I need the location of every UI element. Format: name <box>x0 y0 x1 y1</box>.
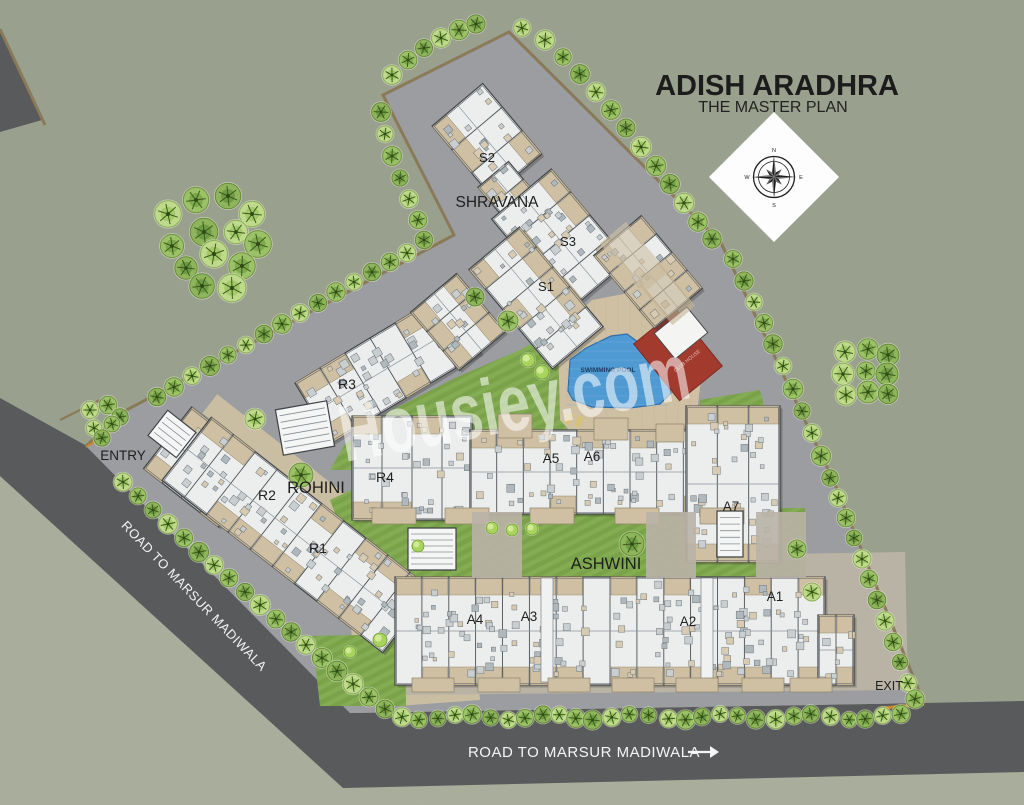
svg-text:ROAD TO MARSUR MADIWALA: ROAD TO MARSUR MADIWALA <box>468 744 700 761</box>
svg-text:A5: A5 <box>543 451 560 466</box>
svg-text:A4: A4 <box>467 612 484 627</box>
svg-text:EXIT: EXIT <box>875 679 903 693</box>
svg-text:A6: A6 <box>584 449 601 464</box>
svg-text:A3: A3 <box>521 609 538 624</box>
svg-text:S: S <box>772 203 776 209</box>
svg-text:S2: S2 <box>479 150 495 165</box>
svg-text:A7: A7 <box>723 499 740 514</box>
svg-text:A1: A1 <box>767 589 784 604</box>
svg-text:S3: S3 <box>560 234 576 249</box>
svg-text:N: N <box>772 148 776 154</box>
svg-text:THE MASTER PLAN: THE MASTER PLAN <box>698 99 847 116</box>
svg-text:A2: A2 <box>680 614 697 629</box>
svg-text:ADISH ARADHRA: ADISH ARADHRA <box>655 70 899 102</box>
svg-text:R2: R2 <box>258 487 276 503</box>
svg-text:SHRAVANA: SHRAVANA <box>456 194 540 211</box>
svg-text:R1: R1 <box>309 540 327 556</box>
svg-text:W: W <box>744 175 750 181</box>
svg-text:ROHINI: ROHINI <box>287 479 345 497</box>
svg-text:ASHWINI: ASHWINI <box>571 555 642 573</box>
svg-text:ENTRY: ENTRY <box>100 448 146 463</box>
svg-text:E: E <box>799 175 803 181</box>
svg-text:S1: S1 <box>538 279 554 294</box>
